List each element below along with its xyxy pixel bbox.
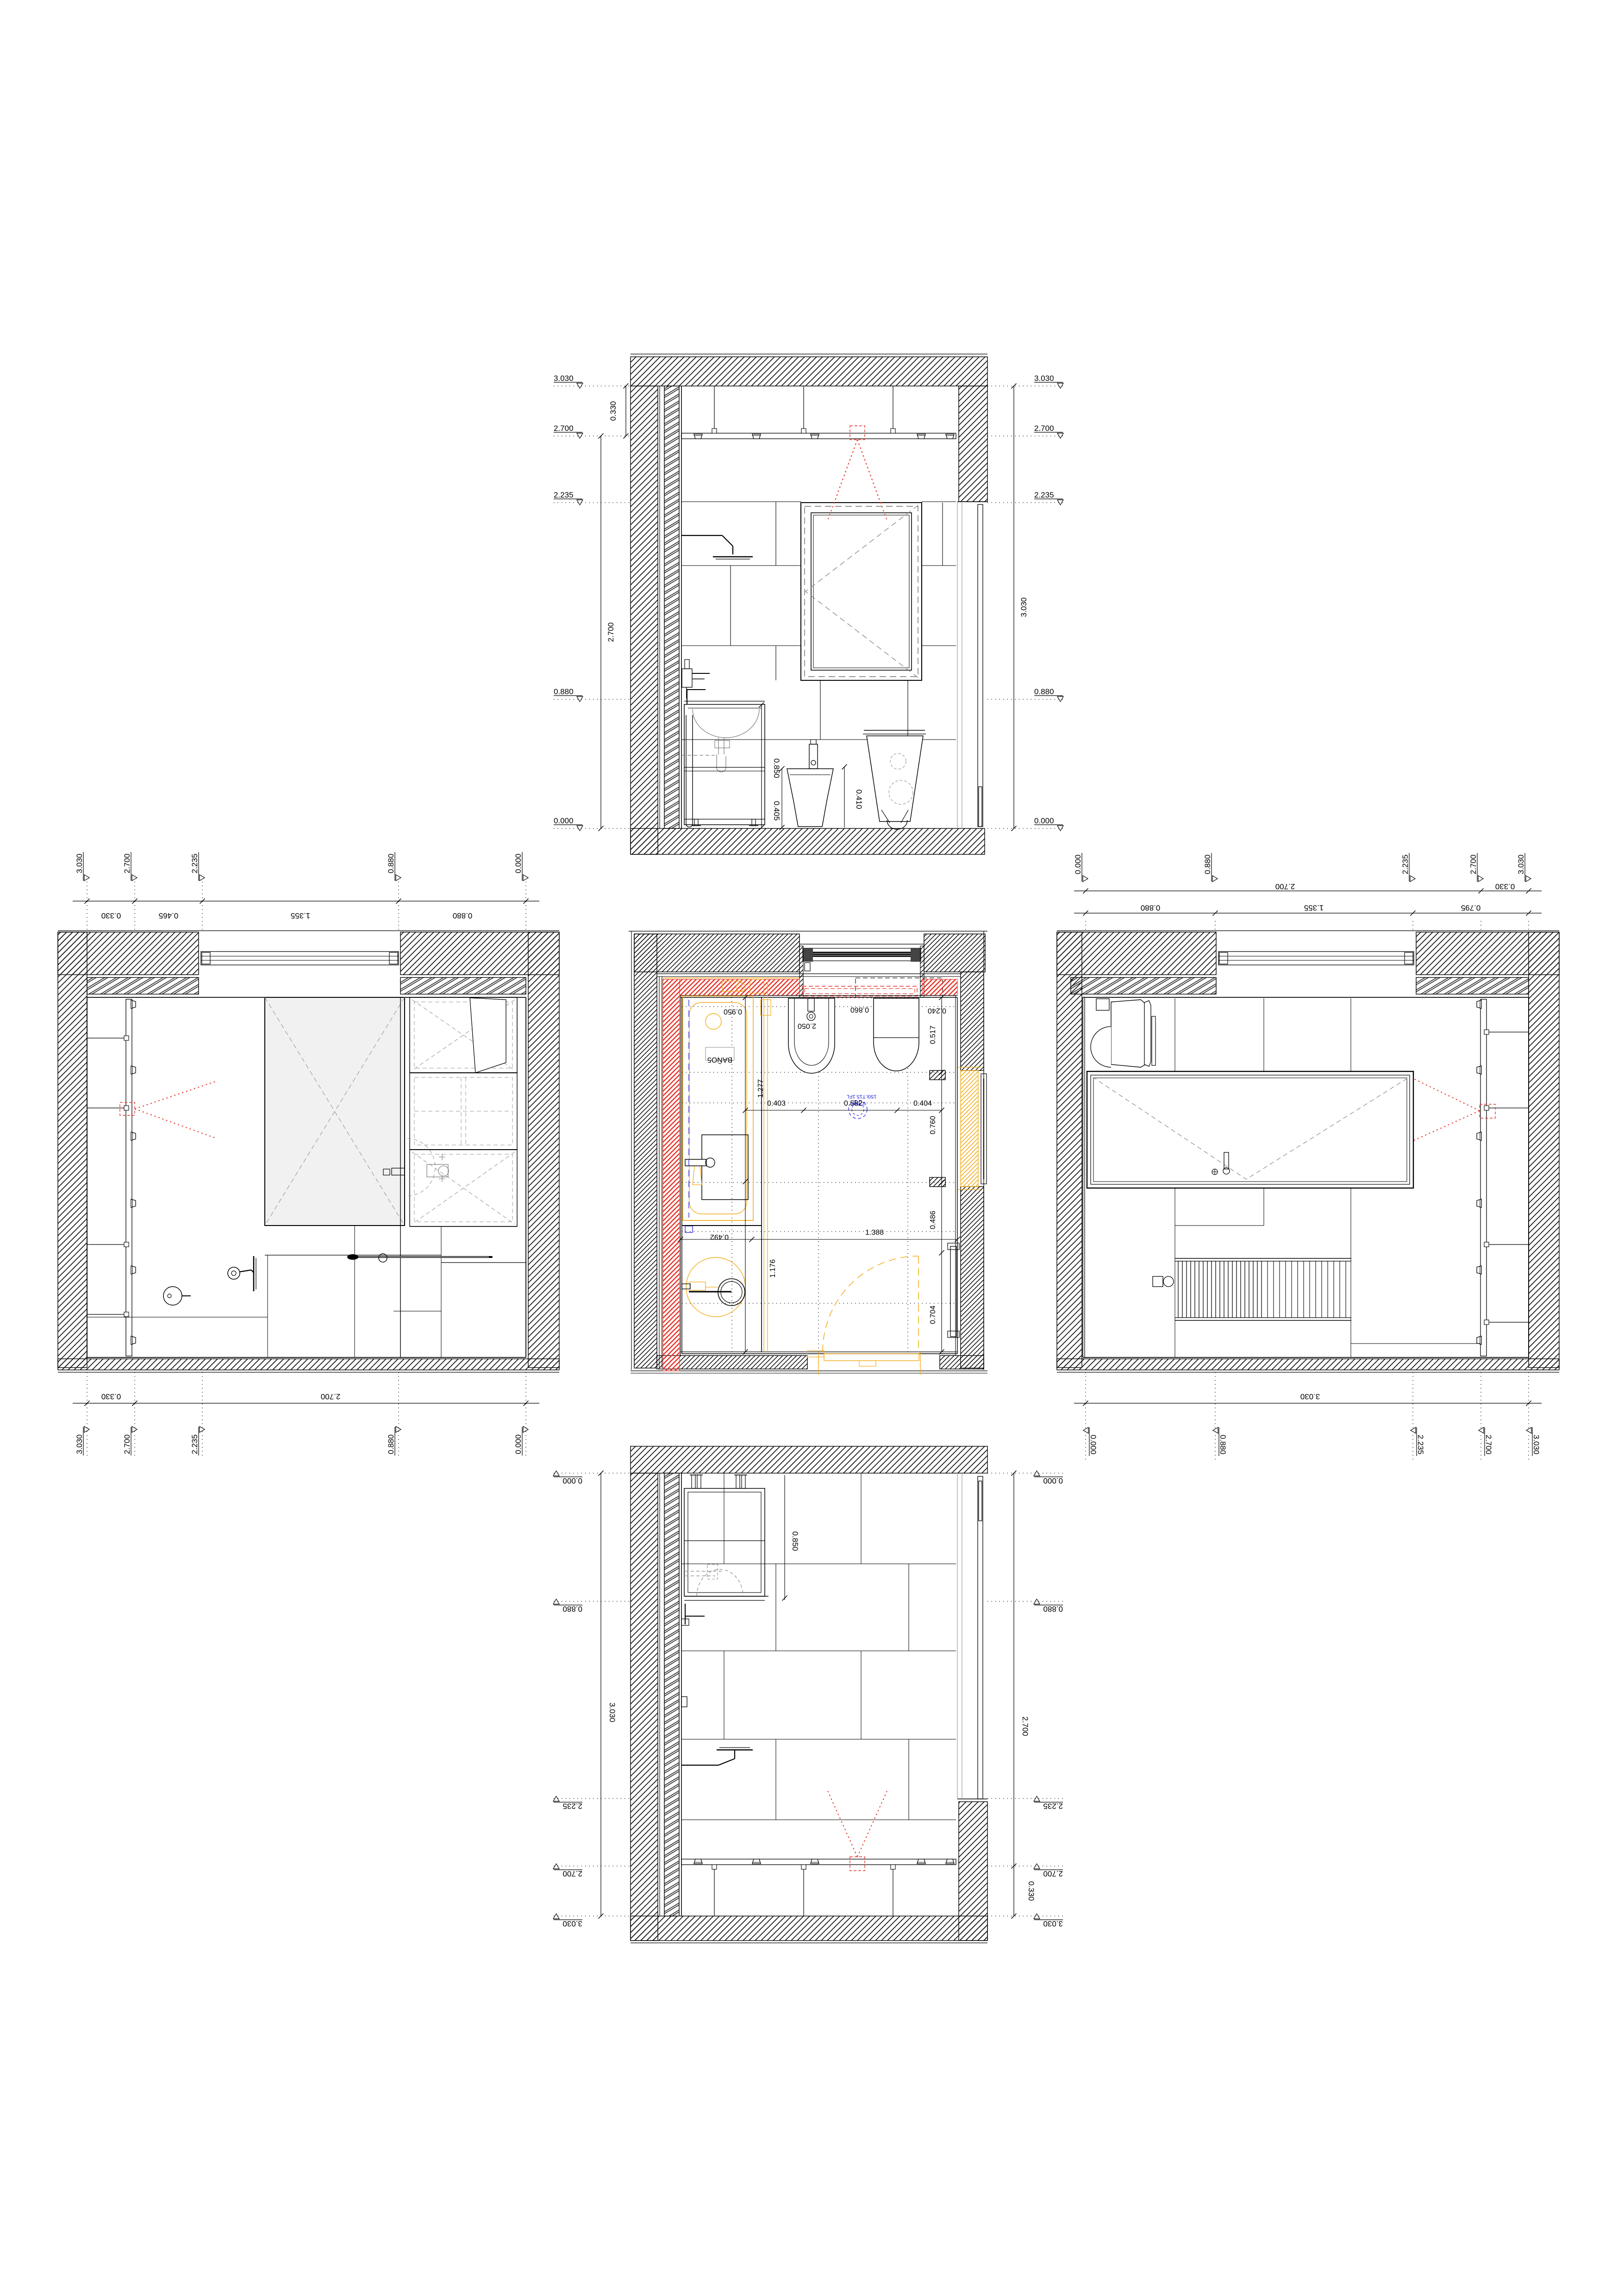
svg-text:0.000: 0.000 xyxy=(1074,854,1082,874)
svg-text:0.000: 0.000 xyxy=(1034,816,1054,825)
svg-text:0.880: 0.880 xyxy=(387,853,395,873)
svg-text:0.000: 0.000 xyxy=(1043,1476,1063,1485)
svg-text:2.700: 2.700 xyxy=(123,853,131,873)
svg-text:3.030: 3.030 xyxy=(1034,374,1054,383)
svg-text:0.880: 0.880 xyxy=(562,1605,582,1613)
svg-text:2.700: 2.700 xyxy=(554,424,574,433)
svg-text:2.235: 2.235 xyxy=(562,1802,582,1811)
svg-text:0.880: 0.880 xyxy=(387,1434,395,1454)
svg-text:0.517: 0.517 xyxy=(929,1026,937,1044)
svg-text:3.030: 3.030 xyxy=(562,1919,582,1928)
svg-text:0.704: 0.704 xyxy=(929,1306,937,1324)
svg-text:2.235: 2.235 xyxy=(1034,491,1054,499)
svg-text:0.240: 0.240 xyxy=(928,1007,946,1014)
svg-text:150i.T15.1FL: 150i.T15.1FL xyxy=(847,1094,877,1099)
svg-text:2.700: 2.700 xyxy=(1275,882,1295,891)
svg-text:2.700: 2.700 xyxy=(123,1434,131,1454)
svg-text:0.880: 0.880 xyxy=(1043,1605,1063,1613)
svg-text:0.000: 0.000 xyxy=(554,816,574,825)
svg-text:3.030: 3.030 xyxy=(608,1703,617,1723)
svg-text:2.235: 2.235 xyxy=(1401,854,1410,874)
svg-text:0.880: 0.880 xyxy=(1218,1435,1227,1455)
svg-text:3.030: 3.030 xyxy=(554,374,574,383)
svg-text:2.700: 2.700 xyxy=(1034,424,1054,433)
svg-text:3.030: 3.030 xyxy=(1043,1919,1063,1928)
svg-text:2.235: 2.235 xyxy=(190,853,199,873)
svg-text:2.700: 2.700 xyxy=(1484,1435,1493,1455)
svg-text:2.235: 2.235 xyxy=(1043,1802,1063,1811)
svg-text:0.850: 0.850 xyxy=(791,1531,800,1551)
svg-text:2.235: 2.235 xyxy=(190,1434,199,1454)
svg-text:2.700: 2.700 xyxy=(1021,1717,1030,1736)
svg-text:0.880: 0.880 xyxy=(1203,854,1212,874)
svg-text:2.235: 2.235 xyxy=(554,491,574,499)
svg-text:1.355: 1.355 xyxy=(291,911,311,920)
svg-text:1.176: 1.176 xyxy=(769,1259,777,1278)
svg-text:2.700: 2.700 xyxy=(321,1392,341,1401)
svg-text:3.030: 3.030 xyxy=(1300,1392,1320,1401)
svg-text:2.235: 2.235 xyxy=(1416,1435,1425,1455)
svg-text:1.355: 1.355 xyxy=(1304,903,1324,912)
svg-text:0.795: 0.795 xyxy=(1461,903,1481,912)
svg-text:0.760: 0.760 xyxy=(929,1116,937,1134)
svg-text:2.700: 2.700 xyxy=(606,622,615,642)
svg-text:0.330: 0.330 xyxy=(101,1392,121,1401)
svg-text:0.330: 0.330 xyxy=(1495,882,1515,891)
svg-text:0.000: 0.000 xyxy=(514,853,523,873)
svg-text:0.404: 0.404 xyxy=(913,1100,932,1108)
svg-text:0.330: 0.330 xyxy=(1027,1881,1036,1901)
svg-text:0.000: 0.000 xyxy=(514,1434,523,1454)
svg-text:0.330: 0.330 xyxy=(101,911,121,920)
svg-text:3.030: 3.030 xyxy=(1532,1435,1541,1455)
svg-text:0.000: 0.000 xyxy=(1089,1435,1098,1455)
svg-text:0.410: 0.410 xyxy=(855,790,863,809)
svg-text:1.277: 1.277 xyxy=(757,1079,765,1098)
svg-text:1.388: 1.388 xyxy=(865,1229,884,1237)
svg-text:3.030: 3.030 xyxy=(1517,854,1525,874)
svg-text:0.330: 0.330 xyxy=(609,401,618,421)
svg-text:0.465: 0.465 xyxy=(159,911,179,920)
svg-text:2.700: 2.700 xyxy=(562,1869,582,1878)
svg-text:0.880: 0.880 xyxy=(554,687,574,696)
svg-text:0.403: 0.403 xyxy=(767,1100,786,1108)
svg-text:BAÑO5: BAÑO5 xyxy=(707,1056,732,1065)
svg-text:0.486: 0.486 xyxy=(929,1211,937,1229)
svg-text:0.000: 0.000 xyxy=(562,1476,582,1485)
svg-text:0.950: 0.950 xyxy=(724,1008,742,1015)
svg-text:0.880: 0.880 xyxy=(1141,903,1161,912)
svg-text:0.850: 0.850 xyxy=(772,759,781,778)
svg-text:3.030: 3.030 xyxy=(1019,597,1028,617)
svg-text:0.582: 0.582 xyxy=(844,1100,862,1108)
svg-text:2.050: 2.050 xyxy=(798,1022,816,1030)
svg-text:0.880: 0.880 xyxy=(1034,687,1054,696)
svg-text:2.700: 2.700 xyxy=(1043,1869,1063,1878)
svg-text:3.030: 3.030 xyxy=(75,853,84,873)
svg-text:0.405: 0.405 xyxy=(772,801,781,821)
svg-text:0.880: 0.880 xyxy=(453,911,473,920)
svg-text:0.492: 0.492 xyxy=(710,1233,729,1241)
svg-text:0.860: 0.860 xyxy=(850,1006,869,1014)
svg-text:2.700: 2.700 xyxy=(1469,854,1478,874)
svg-text:3.030: 3.030 xyxy=(75,1434,84,1454)
